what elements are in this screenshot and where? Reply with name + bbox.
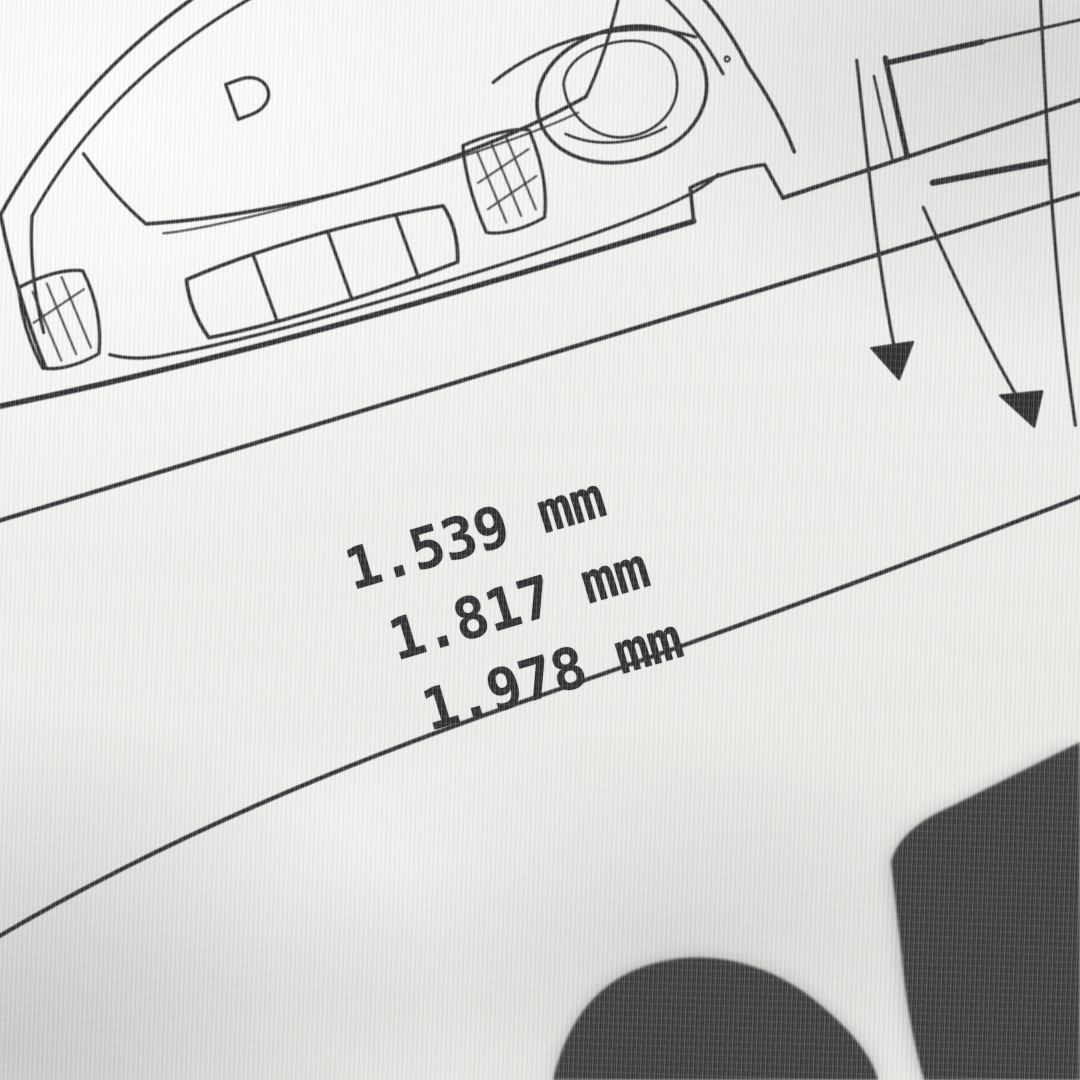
large-print-glyphs [0,0,1080,1080]
tshirt-print-photo: 1.539 mm 1.817 mm 1.978 mm [0,0,1080,1080]
glyph-shape-left [553,957,878,1080]
printed-graphic-shapes [0,0,1080,1080]
glyph-shape-right [891,742,1080,1080]
